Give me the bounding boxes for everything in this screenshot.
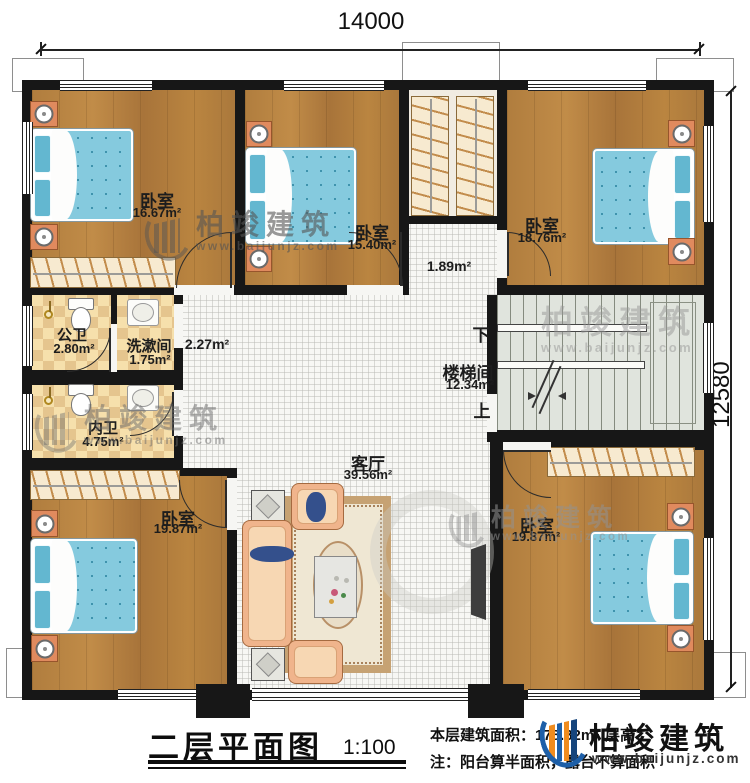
area-bedroom-top-middle: 15.40m² — [348, 237, 396, 252]
nightstand — [668, 120, 695, 147]
area-stairwell: 12.34m² — [446, 377, 494, 392]
pillow — [34, 179, 51, 217]
door-leaf-bedroom-bottom-left — [225, 480, 227, 528]
nightstand — [246, 121, 272, 147]
top-dimension-label: 14000 — [338, 8, 405, 36]
area-washroom: 1.75m² — [129, 352, 170, 367]
pillow — [34, 590, 51, 629]
window-top-bedroom-right — [528, 80, 646, 91]
stair-arrow-right — [528, 392, 536, 400]
top-dim-ext-right — [699, 42, 701, 56]
title-underline-thin — [148, 767, 406, 769]
side-table — [251, 648, 285, 681]
door-gap-bedroom-bottom-right — [503, 442, 551, 450]
pillow — [34, 135, 51, 173]
door-leaf-public-bath — [109, 328, 111, 372]
label-stairs-up: 上 — [474, 397, 491, 422]
door-gap-private-bath — [174, 390, 183, 436]
pillow — [674, 155, 691, 194]
door-leaf-bedroom-top-middle — [400, 232, 402, 286]
wall-lamp-icon — [44, 310, 53, 319]
floor-plan-canvas: 14000 12580 — [0, 0, 750, 783]
window-bottom-bedroom-right — [528, 689, 640, 700]
bed — [30, 128, 134, 222]
sheet — [266, 149, 292, 243]
pillow — [34, 545, 51, 584]
sheet — [647, 533, 673, 623]
person — [250, 546, 294, 562]
door-gap-bedroom-top-right — [497, 230, 507, 278]
door-leaf-private-bath — [172, 392, 174, 436]
area-bedroom-bottom-left: 19.87m² — [154, 521, 202, 536]
nightstand — [31, 510, 58, 537]
stair-landing-outline — [650, 302, 696, 424]
pillow — [673, 582, 690, 620]
door-gap-bedroom-top-middle — [347, 285, 403, 295]
sheet — [51, 130, 77, 220]
window-bottom-bedroom-left — [118, 689, 198, 700]
stair-arrow-left — [558, 392, 566, 400]
door-gap-public-bath — [111, 324, 117, 372]
window-right-bedroom-top — [703, 126, 714, 222]
window-right-bedroom-bottom — [703, 538, 714, 640]
sheet — [648, 150, 674, 243]
drawing-scale: 1:100 — [343, 736, 396, 760]
window-left-private-bath — [22, 394, 33, 450]
wardrobe — [547, 447, 695, 477]
bed — [592, 148, 695, 245]
pillow — [674, 200, 691, 239]
area-corridor: 2.27m² — [185, 336, 229, 352]
nightstand — [668, 238, 695, 265]
armchair — [288, 640, 343, 684]
nightstand — [667, 503, 694, 530]
door-leaf-bedroom-top-left — [230, 232, 232, 288]
brand-logo-icon — [542, 710, 586, 766]
window-left-public-bath — [22, 306, 33, 366]
nightstand — [246, 246, 272, 272]
door-gap-washroom — [174, 304, 183, 348]
column-bottom-left — [196, 684, 250, 718]
stair-rail-lower — [497, 361, 645, 369]
closet — [411, 96, 449, 216]
door-leaf-bedroom-top-right — [507, 232, 509, 276]
sink — [127, 299, 159, 326]
top-dimension-line — [40, 49, 700, 51]
pillow — [249, 200, 266, 240]
window-top-bedroom-middle — [284, 80, 384, 91]
pillow — [673, 538, 690, 576]
door-leaf-bedroom-bottom-right — [503, 450, 551, 452]
brand-url: www.baijunjz.com — [592, 751, 741, 766]
window-bottom-living — [252, 688, 468, 701]
window-right-stairwell — [703, 323, 714, 393]
window-left-bedroom — [22, 122, 33, 194]
area-bedroom-top-right: 18.76m² — [518, 230, 566, 245]
coffee-table — [314, 556, 357, 618]
stair-rail-upper — [497, 324, 647, 332]
area-bedroom-top-left: 16.67m² — [133, 205, 181, 220]
wardrobe — [30, 257, 176, 288]
window-top-bedroom-left — [60, 80, 152, 91]
label-stairs-down: 下 — [473, 321, 490, 346]
sheet — [51, 540, 77, 632]
tv — [471, 544, 486, 620]
toilet — [68, 384, 94, 416]
area-living-room: 39.56m² — [344, 467, 392, 482]
column-bottom-right — [468, 684, 524, 718]
area-private-bath: 4.75m² — [82, 434, 123, 449]
nightstand — [667, 625, 694, 652]
bed — [590, 531, 694, 625]
wall-lamp-icon — [44, 396, 53, 405]
area-bedroom-bottom-right: 19.87m² — [512, 529, 560, 544]
area-public-bath: 2.80m² — [53, 341, 94, 356]
top-dim-ext-left — [40, 42, 42, 56]
bed — [245, 147, 357, 245]
nightstand — [30, 101, 58, 127]
nightstand — [31, 635, 58, 662]
pillow — [249, 154, 266, 194]
area-passage: 1.89m² — [427, 258, 471, 274]
person — [306, 492, 326, 522]
door-gap-bedroom-bottom-left — [227, 478, 237, 530]
bed — [30, 538, 138, 634]
title-underline-thick — [148, 760, 406, 764]
sofa — [242, 520, 292, 647]
nightstand — [30, 224, 58, 250]
wardrobe — [30, 470, 180, 500]
closet — [456, 96, 494, 216]
side-table — [251, 490, 285, 522]
